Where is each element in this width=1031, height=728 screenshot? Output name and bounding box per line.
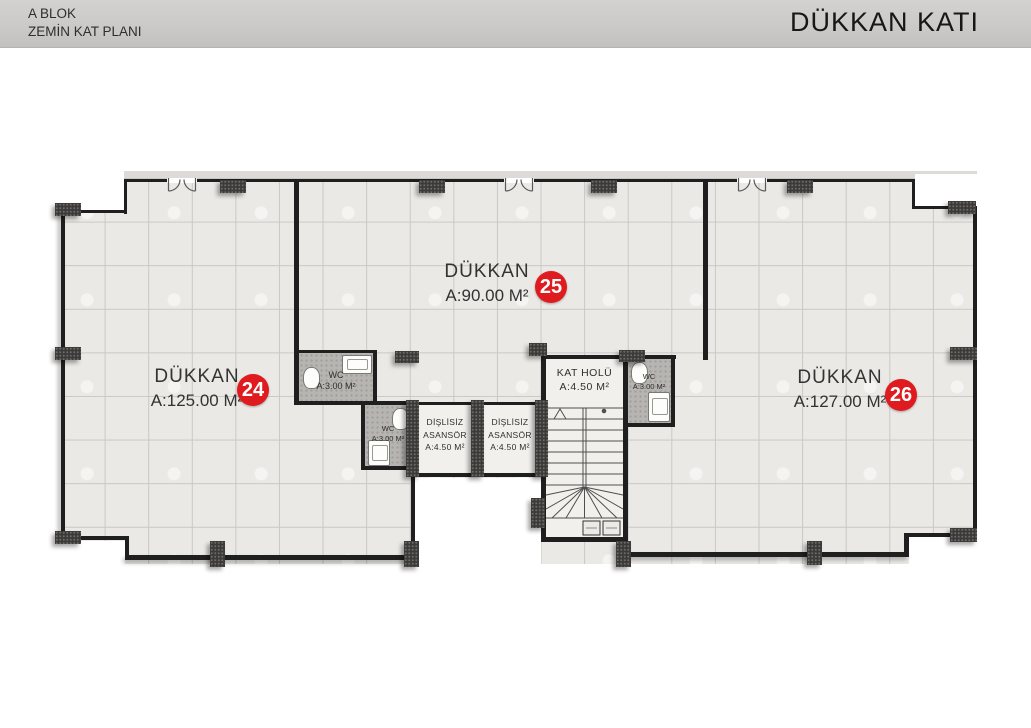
block-plan-label: A BLOK ZEMİN KAT PLANI (28, 5, 142, 41)
notch-bottom-left (58, 541, 125, 567)
column (220, 180, 246, 193)
wall-divider (703, 179, 708, 360)
column (807, 541, 822, 565)
wall (296, 350, 377, 353)
wall (373, 350, 377, 405)
wall (294, 401, 415, 405)
column (950, 528, 977, 542)
column (950, 347, 977, 360)
unit-25-badge: 25 (535, 271, 567, 303)
column (619, 350, 645, 362)
column (55, 531, 81, 544)
plan-label: ZEMİN KAT PLANI (28, 23, 142, 41)
wall (125, 555, 416, 560)
sink-icon (648, 392, 670, 422)
double-door-icon (167, 178, 197, 194)
wall (973, 206, 977, 537)
wall (541, 355, 676, 359)
block-label: A BLOK (28, 5, 142, 23)
title-bar: A BLOK ZEMİN KAT PLANI DÜKKAN KATI (0, 0, 1031, 48)
unit-26-badge: 26 (885, 379, 917, 411)
wall (124, 179, 127, 214)
column (531, 498, 545, 528)
double-door-icon (504, 178, 534, 194)
column (591, 180, 617, 193)
elevator-1-label: DİŞLİSİZ ASANSÖR A:4.50 M² (415, 416, 475, 454)
hall-label: KAT HOLÜ A:4.50 M² (546, 366, 623, 394)
wall (61, 210, 65, 540)
wc-1-label: WC A:3.00 M² (304, 370, 368, 392)
column (419, 180, 445, 193)
wc-2-label: WC A:3.00 M² (365, 424, 411, 444)
floor-title: DÜKKAN KATI (790, 7, 979, 38)
column (787, 180, 813, 193)
column (395, 351, 419, 363)
column (616, 541, 631, 567)
elevator-2-label: DİŞLİSİZ ASANSÖR A:4.50 M² (480, 416, 540, 454)
wall-divider (294, 179, 299, 405)
column (210, 541, 225, 567)
wall (541, 537, 628, 542)
floor-plan-page: { "header": { "block_label": "A BLOK", "… (0, 0, 1031, 728)
double-door-icon (737, 178, 767, 194)
wall (912, 179, 915, 209)
column (404, 541, 419, 567)
wc-3-label: WC A:3.00 M² (626, 372, 672, 392)
column (529, 343, 547, 356)
wall (623, 552, 909, 557)
wall (623, 423, 675, 427)
unit-24-badge: 24 (237, 374, 269, 406)
column (55, 347, 81, 360)
notch-bottom-middle (415, 478, 541, 566)
column (948, 201, 976, 214)
column (55, 203, 81, 216)
wall (419, 402, 472, 405)
wall (484, 402, 536, 405)
